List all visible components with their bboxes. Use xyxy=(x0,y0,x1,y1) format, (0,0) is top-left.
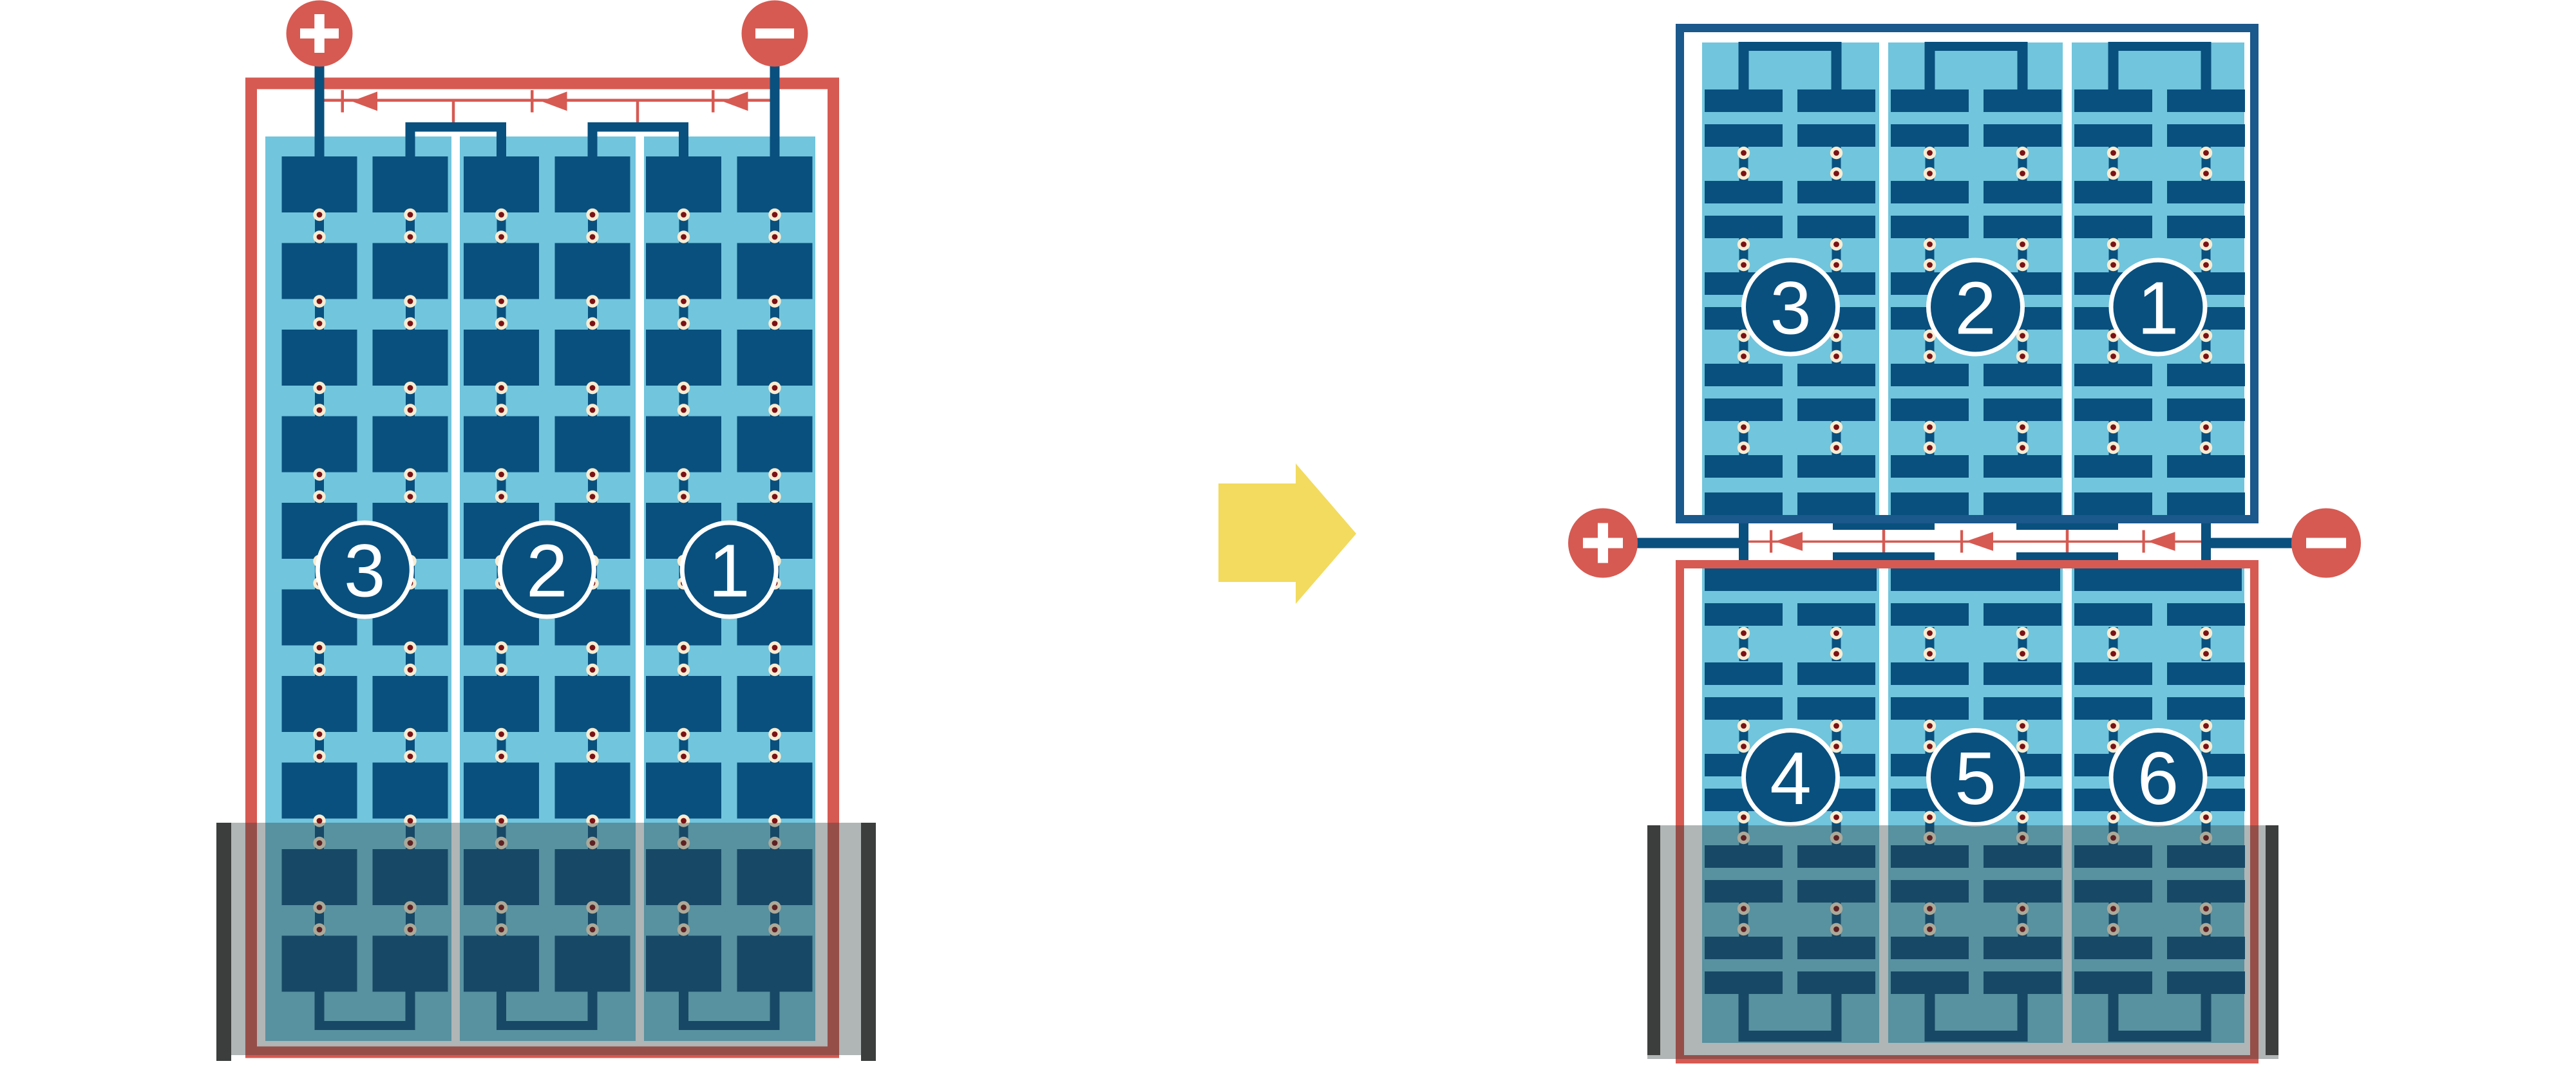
svg-text:5: 5 xyxy=(1955,736,1996,820)
svg-text:1: 1 xyxy=(708,529,750,613)
svg-text:3: 3 xyxy=(344,529,386,613)
svg-text:4: 4 xyxy=(1770,736,1812,820)
svg-text:1: 1 xyxy=(2137,267,2179,350)
svg-text:2: 2 xyxy=(526,529,568,613)
svg-text:6: 6 xyxy=(2137,736,2179,820)
svg-text:2: 2 xyxy=(1955,267,1996,350)
svg-text:3: 3 xyxy=(1770,267,1812,350)
